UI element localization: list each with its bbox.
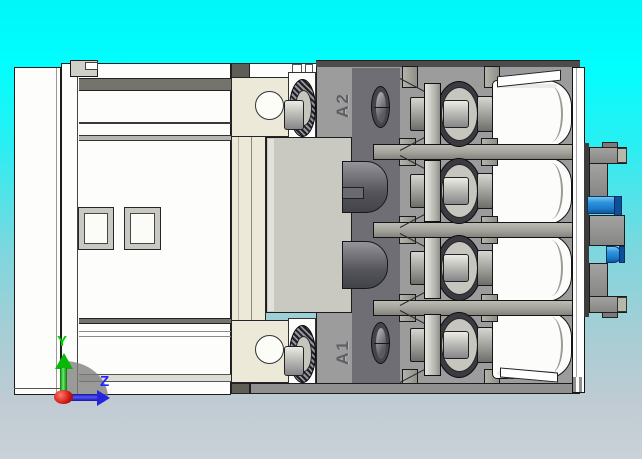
- din-clip-top-edge: [614, 196, 622, 217]
- terminal-screw-4-hub: [443, 331, 469, 359]
- wire-cavity-3-arc: [539, 240, 563, 296]
- body-line-2: [79, 331, 231, 332]
- terminal-clamp-2[interactable]: [424, 160, 441, 222]
- cad-viewport[interactable]: A2 A1: [0, 0, 642, 459]
- coil-block-highlight: [268, 139, 274, 311]
- knurled-screw-top-hub: [284, 100, 304, 130]
- wire-cavity-1[interactable]: [492, 80, 572, 148]
- din-rail-inner-line: [576, 68, 577, 392]
- wire-cavity-1-arc: [539, 86, 563, 142]
- axis-label-y[interactable]: Y: [57, 334, 67, 349]
- coil-screw-hole-top[interactable]: [255, 91, 284, 120]
- body-recess-square-2-inner: [130, 213, 155, 244]
- terminal-clamp-3[interactable]: [424, 237, 441, 299]
- body-recess-square-1-inner: [84, 213, 108, 244]
- terminal-screw-2-tip: [477, 173, 493, 209]
- bracket-middle-block[interactable]: [589, 215, 625, 246]
- magnet-cylinder-top[interactable]: [342, 161, 388, 213]
- body-recess-square-2[interactable]: [124, 207, 161, 250]
- body-recess-square-1[interactable]: [78, 207, 114, 250]
- body-top-dark-band: [79, 78, 231, 91]
- housing-slot-bottom[interactable]: [371, 322, 390, 364]
- terminal-screw-1-tip: [477, 96, 493, 132]
- top-mount-tab-notch: [85, 62, 98, 70]
- terminal-clamp-1[interactable]: [424, 83, 441, 145]
- bracket-bottom-tab: [602, 312, 618, 318]
- housing-slot-top[interactable]: [371, 86, 390, 128]
- terminal-screw-2-hub: [443, 177, 469, 205]
- body-line-3: [79, 336, 231, 337]
- body-gray-band: [79, 135, 231, 141]
- wire-cavity-4-arc: [539, 317, 563, 373]
- bracket-arm-top: [589, 163, 608, 197]
- axis-label-z[interactable]: Z: [100, 374, 109, 389]
- wire-cavity-2[interactable]: [492, 157, 572, 225]
- terminal-screw-4-tip: [477, 327, 493, 363]
- coil-block[interactable]: [266, 137, 352, 313]
- left-side-plate-bottom-line: [14, 388, 61, 389]
- knurled-screw-bottom-hub: [284, 346, 304, 376]
- terminal-screw-1-hub: [443, 100, 469, 128]
- origin-point[interactable]: [54, 390, 73, 404]
- body-line-1: [79, 122, 231, 124]
- bracket-top-cap: [617, 148, 627, 163]
- mid-bottom-dark-block: [231, 383, 250, 394]
- mid-top-dark-block: [231, 63, 250, 78]
- wire-cavity-2-arc: [539, 163, 563, 219]
- din-rail-bottom-shading: [573, 377, 584, 392]
- z-axis-arrowhead[interactable]: [97, 390, 110, 406]
- bottom-strip: [250, 383, 580, 394]
- left-side-plate[interactable]: [14, 67, 61, 395]
- terminal-screw-3-hub: [443, 254, 469, 282]
- terminal-housing-top-edge: [316, 61, 580, 67]
- body-bottom-dark-band: [79, 318, 231, 324]
- bracket-arm-bottom: [589, 263, 608, 298]
- wire-cavity-3[interactable]: [492, 234, 572, 302]
- din-clip-bottom-edge: [619, 246, 625, 263]
- magnet-cylinder-top-notch: [343, 187, 364, 199]
- magnet-cylinder-bottom[interactable]: [342, 241, 388, 289]
- terminal-screw-3-tip: [477, 250, 493, 286]
- bracket-bottom-cap: [617, 297, 627, 312]
- coil-screw-hole-bottom[interactable]: [255, 335, 284, 364]
- terminal-clamp-4[interactable]: [424, 314, 441, 376]
- bracket-top-tab: [602, 142, 618, 148]
- y-axis-arrowhead[interactable]: [55, 353, 73, 369]
